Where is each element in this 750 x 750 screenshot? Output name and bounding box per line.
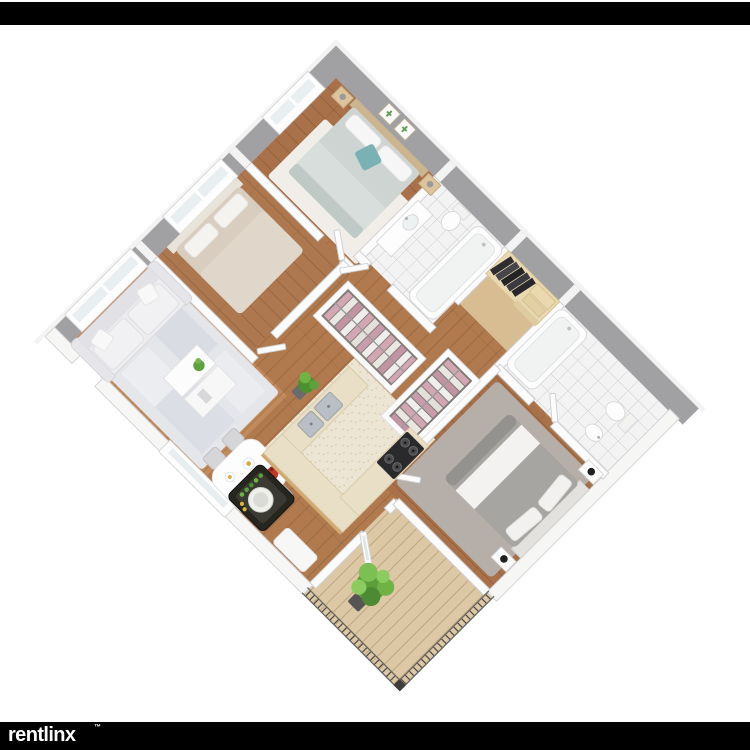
logo-trademark-icon: ™ <box>94 724 101 731</box>
screenshot-stage: rentlinx ™ <box>0 0 750 750</box>
bottom-letterbox-bar <box>0 722 750 750</box>
rentlinx-logo: rentlinx <box>8 724 75 747</box>
floorplan-rotated-group <box>34 39 706 711</box>
floorplan-image <box>0 0 750 750</box>
